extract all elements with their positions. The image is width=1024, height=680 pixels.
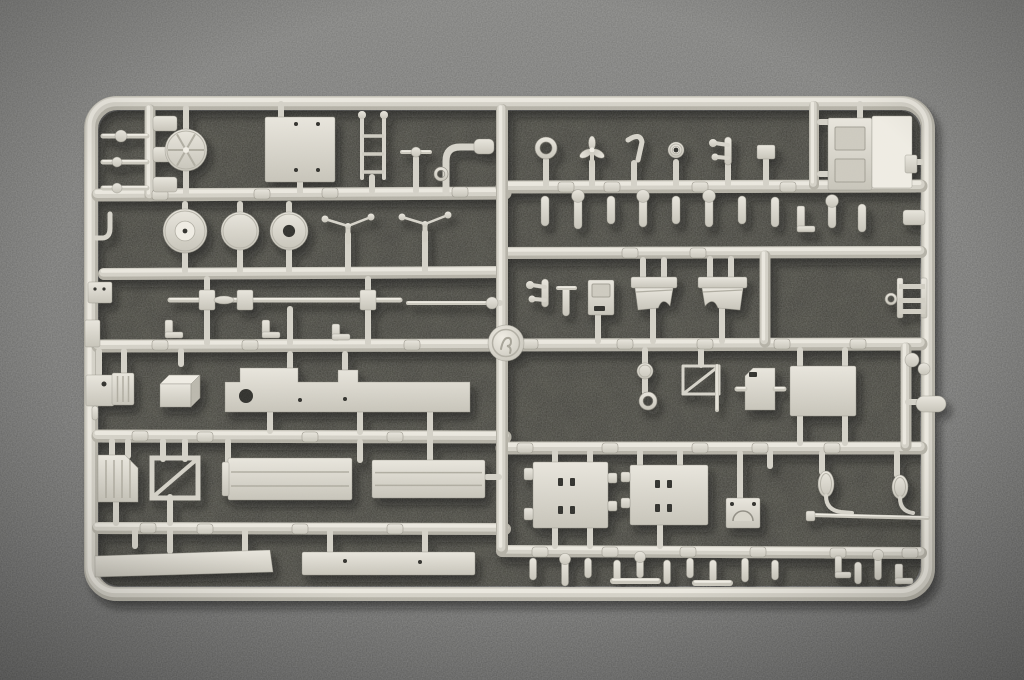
photo-model-kit-sprue bbox=[0, 0, 1024, 680]
sprue-photo-canvas bbox=[0, 0, 1024, 680]
vignette-overlay bbox=[0, 0, 1024, 680]
